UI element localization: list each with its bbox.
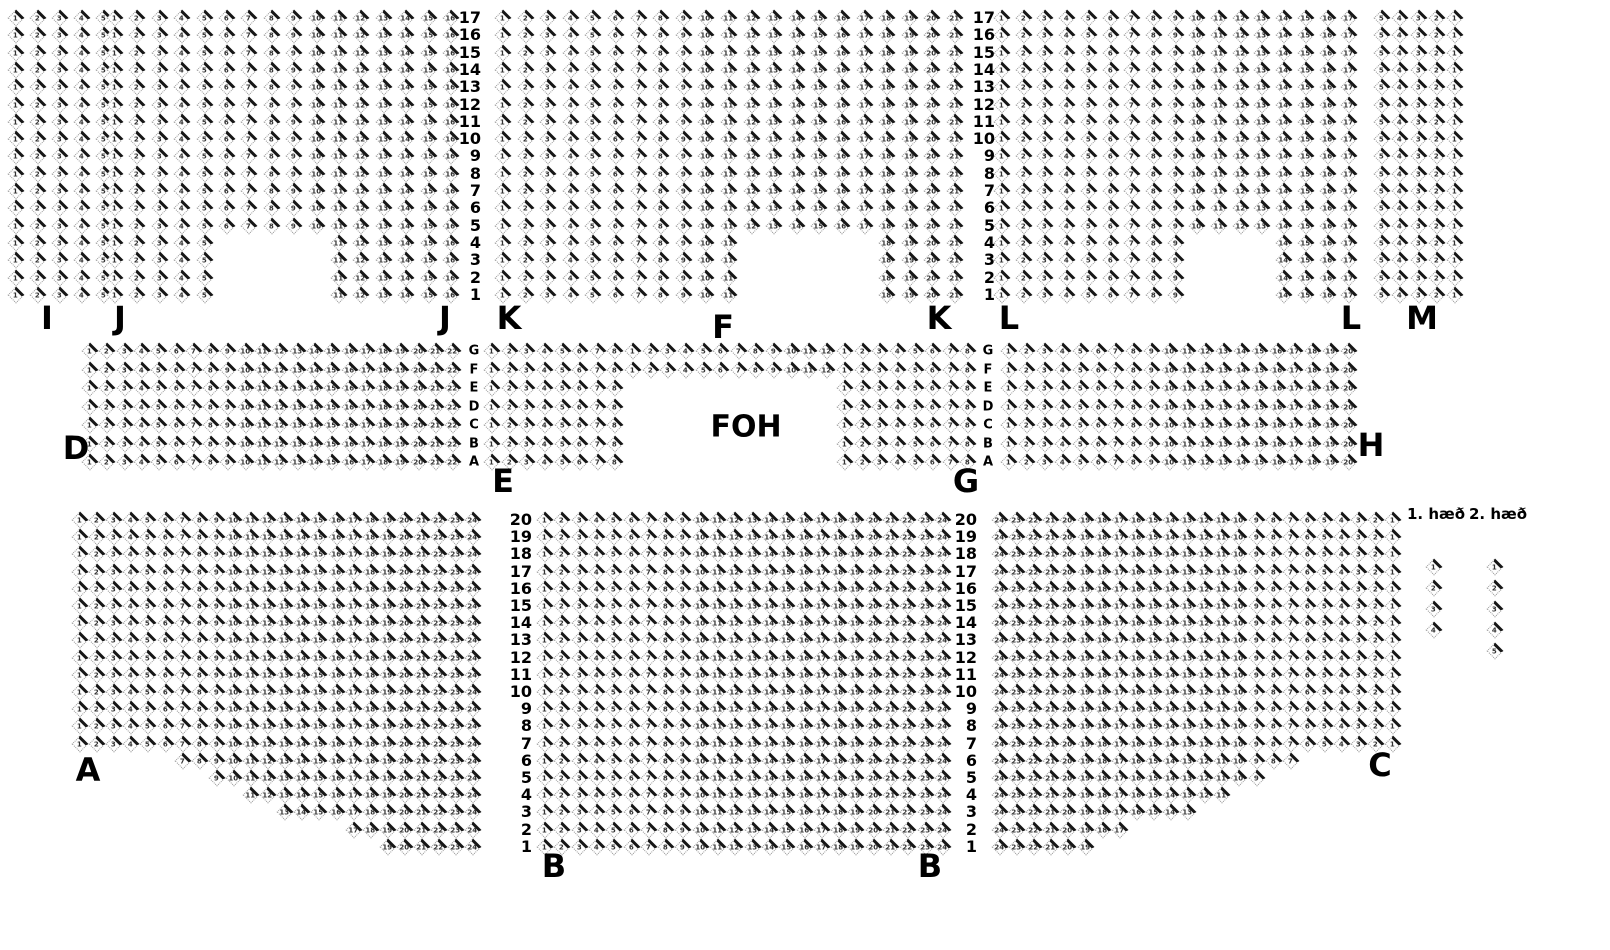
seat-C[interactable]: 10	[1231, 684, 1248, 701]
seat-L[interactable]: 6	[1102, 183, 1119, 200]
seat-A[interactable]: 16	[328, 546, 345, 563]
seat-B[interactable]: 18	[831, 649, 848, 666]
seat-L[interactable]: 11	[1211, 165, 1228, 182]
seat-J[interactable]: 3	[151, 113, 168, 130]
seat-K[interactable]: 9	[675, 10, 692, 27]
seat-K[interactable]: 17	[856, 183, 873, 200]
seat-L[interactable]: 8	[1145, 113, 1162, 130]
seat-H[interactable]: 18	[1305, 361, 1322, 378]
seat-K[interactable]: 11	[721, 269, 738, 286]
seat-B[interactable]: 12	[727, 718, 744, 735]
seat-G[interactable]: 2	[854, 398, 871, 415]
seat-L[interactable]: 14	[1276, 217, 1293, 234]
seat-A[interactable]: 18	[362, 632, 379, 649]
seat-K[interactable]: 11	[721, 131, 738, 148]
seat-C[interactable]: 11	[1214, 735, 1231, 752]
seat-K[interactable]: 7	[630, 96, 647, 113]
seat-F[interactable]: 6	[713, 361, 730, 378]
seat-C[interactable]: 2	[1368, 529, 1385, 546]
seat-C[interactable]: 20	[1060, 666, 1077, 683]
seat-C[interactable]: 13	[1180, 701, 1197, 718]
seat-C[interactable]: 5	[1316, 563, 1333, 580]
seat-K[interactable]: 9	[675, 79, 692, 96]
seat-B[interactable]: 17	[813, 615, 830, 632]
seat-J[interactable]: 13	[375, 96, 392, 113]
seat-B[interactable]: 12	[727, 821, 744, 838]
seat-C[interactable]: 23	[1009, 666, 1026, 683]
seat-L[interactable]: 5	[1080, 131, 1097, 148]
seat-B[interactable]: 3	[571, 529, 588, 546]
seat-L[interactable]: 2	[1015, 183, 1032, 200]
seat-M[interactable]: 4	[1392, 217, 1409, 234]
seat-floor2-categories[interactable]: 4	[1487, 622, 1504, 639]
seat-J[interactable]: 13	[375, 200, 392, 217]
seat-B[interactable]: 14	[761, 580, 778, 597]
seat-J[interactable]: 5	[196, 44, 213, 61]
seat-B[interactable]: 11	[710, 546, 727, 563]
seat-B[interactable]: 21	[883, 598, 900, 615]
seat-C[interactable]: 5	[1316, 735, 1333, 752]
seat-C[interactable]: 12	[1197, 770, 1214, 787]
seat-D[interactable]: 21	[428, 380, 445, 397]
seat-J[interactable]: 1	[107, 234, 124, 251]
seat-J[interactable]: 3	[151, 148, 168, 165]
seat-L[interactable]: 7	[1124, 217, 1141, 234]
seat-C[interactable]: 14	[1163, 770, 1180, 787]
seat-B[interactable]: 23	[917, 615, 934, 632]
seat-H[interactable]: 6	[1090, 435, 1107, 452]
seat-L[interactable]: 10	[1189, 200, 1206, 217]
seat-H[interactable]: 8	[1126, 454, 1143, 471]
seat-L[interactable]: 2	[1015, 131, 1032, 148]
seat-I[interactable]: 1	[8, 234, 25, 251]
seat-C[interactable]: 17	[1111, 804, 1128, 821]
seat-C[interactable]: 5	[1316, 546, 1333, 563]
seat-A[interactable]: 2	[89, 666, 106, 683]
seat-D[interactable]: 17	[358, 435, 375, 452]
seat-M[interactable]: 3	[1410, 131, 1427, 148]
seat-L[interactable]: 16	[1319, 269, 1336, 286]
seat-C[interactable]: 4	[1334, 512, 1351, 529]
seat-L[interactable]: 6	[1102, 113, 1119, 130]
seat-L[interactable]: 5	[1080, 286, 1097, 303]
seat-B[interactable]: 4	[588, 701, 605, 718]
seat-B[interactable]: 23	[917, 718, 934, 735]
seat-D[interactable]: 2	[99, 435, 116, 452]
seat-B[interactable]: 1	[537, 701, 554, 718]
seat-C[interactable]: 24	[992, 770, 1009, 787]
seat-A[interactable]: 23	[448, 770, 465, 787]
seat-C[interactable]: 21	[1043, 838, 1060, 855]
seat-G[interactable]: 1	[837, 417, 854, 434]
seat-K[interactable]: 7	[630, 200, 647, 217]
seat-G[interactable]: 4	[889, 343, 906, 360]
seat-L[interactable]: 11	[1211, 79, 1228, 96]
seat-K[interactable]: 10	[698, 44, 715, 61]
seat-D[interactable]: 6	[168, 454, 185, 471]
seat-M[interactable]: 3	[1410, 148, 1427, 165]
seat-B[interactable]: 16	[796, 701, 813, 718]
seat-H[interactable]: 15	[1251, 435, 1268, 452]
seat-A[interactable]: 9	[208, 701, 225, 718]
seat-K[interactable]: 13	[766, 27, 783, 44]
seat-J[interactable]: 9	[286, 10, 303, 27]
seat-C[interactable]: 3	[1351, 580, 1368, 597]
seat-I[interactable]: 1	[8, 148, 25, 165]
seat-A[interactable]: 4	[123, 718, 140, 735]
seat-B[interactable]: 21	[883, 580, 900, 597]
seat-A[interactable]: 17	[345, 546, 362, 563]
seat-A[interactable]: 16	[328, 580, 345, 597]
seat-K[interactable]: 12	[743, 183, 760, 200]
seat-E[interactable]: 7	[589, 398, 606, 415]
seat-K[interactable]: 5	[585, 252, 602, 269]
seat-B[interactable]: 23	[917, 684, 934, 701]
seat-H[interactable]: 6	[1090, 417, 1107, 434]
seat-K[interactable]: 4	[562, 113, 579, 130]
seat-K[interactable]: 18	[879, 79, 896, 96]
seat-C[interactable]: 5	[1316, 580, 1333, 597]
seat-K[interactable]: 2	[517, 61, 534, 78]
seat-B[interactable]: 11	[710, 770, 727, 787]
seat-A[interactable]: 7	[174, 752, 191, 769]
seat-A[interactable]: 17	[345, 649, 362, 666]
seat-H[interactable]: 4	[1054, 343, 1071, 360]
seat-B[interactable]: 21	[883, 529, 900, 546]
seat-H[interactable]: 4	[1054, 454, 1071, 471]
seat-B[interactable]: 24	[934, 684, 951, 701]
seat-B[interactable]: 24	[934, 735, 951, 752]
seat-J[interactable]: 15	[420, 61, 437, 78]
seat-K[interactable]: 7	[630, 183, 647, 200]
seat-J[interactable]: 8	[263, 183, 280, 200]
seat-J[interactable]: 7	[241, 10, 258, 27]
seat-B[interactable]: 15	[779, 770, 796, 787]
seat-B[interactable]: 3	[571, 649, 588, 666]
seat-J[interactable]: 16	[443, 44, 460, 61]
seat-G[interactable]: 7	[942, 343, 959, 360]
seat-A[interactable]: 6	[157, 735, 174, 752]
seat-J[interactable]: 2	[129, 286, 146, 303]
seat-B[interactable]: 11	[710, 752, 727, 769]
seat-A[interactable]: 15	[311, 684, 328, 701]
seat-M[interactable]: 4	[1392, 27, 1409, 44]
seat-K[interactable]: 18	[879, 234, 896, 251]
seat-C[interactable]: 24	[992, 838, 1009, 855]
seat-C[interactable]: 24	[992, 649, 1009, 666]
seat-C[interactable]: 2	[1368, 718, 1385, 735]
seat-L[interactable]: 4	[1059, 10, 1076, 27]
seat-C[interactable]: 14	[1163, 563, 1180, 580]
seat-L[interactable]: 14	[1276, 269, 1293, 286]
seat-C[interactable]: 11	[1214, 598, 1231, 615]
seat-C[interactable]: 2	[1368, 546, 1385, 563]
seat-E[interactable]: 4	[536, 361, 553, 378]
seat-C[interactable]: 21	[1043, 598, 1060, 615]
seat-K[interactable]: 13	[766, 61, 783, 78]
seat-K[interactable]: 1	[495, 44, 512, 61]
seat-K[interactable]: 8	[653, 27, 670, 44]
seat-G[interactable]: 3	[872, 343, 889, 360]
seat-L[interactable]: 3	[1037, 113, 1054, 130]
seat-B[interactable]: 13	[744, 804, 761, 821]
seat-C[interactable]: 7	[1282, 649, 1299, 666]
seat-D[interactable]: 10	[237, 343, 254, 360]
seat-B[interactable]: 6	[623, 838, 640, 855]
seat-B[interactable]: 14	[761, 701, 778, 718]
seat-B[interactable]: 13	[744, 838, 761, 855]
seat-B[interactable]: 18	[831, 838, 848, 855]
seat-A[interactable]: 16	[328, 752, 345, 769]
seat-J[interactable]: 5	[196, 96, 213, 113]
seat-A[interactable]: 14	[294, 649, 311, 666]
seat-C[interactable]: 12	[1197, 701, 1214, 718]
seat-E[interactable]: 5	[554, 361, 571, 378]
seat-K[interactable]: 7	[630, 286, 647, 303]
seat-A[interactable]: 4	[123, 735, 140, 752]
seat-L[interactable]: 13	[1254, 217, 1271, 234]
seat-H[interactable]: 10	[1162, 454, 1179, 471]
seat-J[interactable]: 16	[443, 252, 460, 269]
seat-A[interactable]: 7	[174, 512, 191, 529]
seat-M[interactable]: 3	[1410, 113, 1427, 130]
seat-H[interactable]: 19	[1323, 398, 1340, 415]
seat-I[interactable]: 3	[52, 269, 69, 286]
seat-L[interactable]: 1	[994, 61, 1011, 78]
seat-B[interactable]: 3	[571, 735, 588, 752]
seat-K[interactable]: 21	[947, 217, 964, 234]
seat-C[interactable]: 4	[1334, 615, 1351, 632]
seat-J[interactable]: 15	[420, 200, 437, 217]
seat-E[interactable]: 5	[554, 343, 571, 360]
seat-B[interactable]: 18	[831, 529, 848, 546]
seat-K[interactable]: 3	[540, 44, 557, 61]
seat-B[interactable]: 19	[848, 718, 865, 735]
seat-C[interactable]: 12	[1197, 684, 1214, 701]
seat-A[interactable]: 4	[123, 701, 140, 718]
seat-I[interactable]: 4	[74, 113, 91, 130]
seat-J[interactable]: 12	[353, 165, 370, 182]
seat-A[interactable]: 4	[123, 684, 140, 701]
seat-D[interactable]: 9	[220, 361, 237, 378]
seat-L[interactable]: 11	[1211, 183, 1228, 200]
seat-B[interactable]: 18	[831, 632, 848, 649]
seat-B[interactable]: 8	[658, 666, 675, 683]
seat-B[interactable]: 8	[658, 701, 675, 718]
seat-H[interactable]: 18	[1305, 435, 1322, 452]
seat-D[interactable]: 18	[376, 454, 393, 471]
seat-H[interactable]: 11	[1180, 361, 1197, 378]
seat-C[interactable]: 8	[1265, 752, 1282, 769]
seat-A[interactable]: 5	[140, 632, 157, 649]
seat-A[interactable]: 14	[294, 787, 311, 804]
seat-A[interactable]: 17	[345, 787, 362, 804]
seat-B[interactable]: 20	[865, 598, 882, 615]
seat-M[interactable]: 3	[1410, 61, 1427, 78]
seat-B[interactable]: 2	[554, 821, 571, 838]
seat-M[interactable]: 2	[1428, 252, 1445, 269]
seat-B[interactable]: 7	[640, 770, 657, 787]
seat-J[interactable]: 1	[107, 131, 124, 148]
seat-B[interactable]: 19	[848, 546, 865, 563]
seat-L[interactable]: 3	[1037, 61, 1054, 78]
seat-D[interactable]: 18	[376, 417, 393, 434]
seat-L[interactable]: 5	[1080, 269, 1097, 286]
seat-J[interactable]: 11	[331, 113, 348, 130]
seat-J[interactable]: 7	[241, 61, 258, 78]
seat-C[interactable]: 17	[1111, 563, 1128, 580]
seat-K[interactable]: 13	[766, 165, 783, 182]
seat-H[interactable]: 3	[1036, 380, 1053, 397]
seat-A[interactable]: 10	[225, 770, 242, 787]
seat-J[interactable]: 2	[129, 10, 146, 27]
seat-C[interactable]: 13	[1180, 684, 1197, 701]
seat-B[interactable]: 2	[554, 752, 571, 769]
seat-B[interactable]: 7	[640, 666, 657, 683]
seat-K[interactable]: 18	[879, 165, 896, 182]
seat-B[interactable]: 15	[779, 666, 796, 683]
seat-D[interactable]: 20	[410, 435, 427, 452]
seat-D[interactable]: 1	[82, 380, 99, 397]
seat-J[interactable]: 12	[353, 131, 370, 148]
seat-H[interactable]: 13	[1215, 398, 1232, 415]
seat-C[interactable]: 6	[1299, 684, 1316, 701]
seat-H[interactable]: 10	[1162, 343, 1179, 360]
seat-L[interactable]: 8	[1145, 96, 1162, 113]
seat-E[interactable]: 7	[589, 417, 606, 434]
seat-B[interactable]: 7	[640, 512, 657, 529]
seat-B[interactable]: 2	[554, 580, 571, 597]
seat-L[interactable]: 9	[1167, 217, 1184, 234]
seat-A[interactable]: 9	[208, 615, 225, 632]
seat-K[interactable]: 3	[540, 165, 557, 182]
seat-I[interactable]: 3	[52, 79, 69, 96]
seat-B[interactable]: 1	[537, 512, 554, 529]
seat-B[interactable]: 14	[761, 770, 778, 787]
seat-G[interactable]: 7	[942, 398, 959, 415]
seat-D[interactable]: 12	[272, 343, 289, 360]
seat-M[interactable]: 5	[1374, 79, 1391, 96]
seat-C[interactable]: 14	[1163, 649, 1180, 666]
seat-M[interactable]: 3	[1410, 10, 1427, 27]
seat-A[interactable]: 17	[345, 529, 362, 546]
seat-C[interactable]: 18	[1094, 546, 1111, 563]
seat-J[interactable]: 11	[331, 200, 348, 217]
seat-B[interactable]: 5	[606, 804, 623, 821]
seat-L[interactable]: 9	[1167, 61, 1184, 78]
seat-B[interactable]: 16	[796, 632, 813, 649]
seat-D[interactable]: 17	[358, 417, 375, 434]
seat-A[interactable]: 13	[277, 752, 294, 769]
seat-B[interactable]: 4	[588, 580, 605, 597]
seat-B[interactable]: 11	[710, 529, 727, 546]
seat-K[interactable]: 9	[675, 234, 692, 251]
seat-J[interactable]: 9	[286, 79, 303, 96]
seat-H[interactable]: 4	[1054, 435, 1071, 452]
seat-I[interactable]: 3	[52, 113, 69, 130]
seat-C[interactable]: 10	[1231, 718, 1248, 735]
seat-C[interactable]: 20	[1060, 821, 1077, 838]
seat-H[interactable]: 19	[1323, 361, 1340, 378]
seat-C[interactable]: 8	[1265, 546, 1282, 563]
seat-K[interactable]: 13	[766, 44, 783, 61]
seat-D[interactable]: 19	[393, 417, 410, 434]
seat-H[interactable]: 11	[1180, 435, 1197, 452]
seat-J[interactable]: 1	[107, 217, 124, 234]
seat-J[interactable]: 2	[129, 183, 146, 200]
seat-C[interactable]: 15	[1145, 598, 1162, 615]
seat-J[interactable]: 2	[129, 200, 146, 217]
seat-B[interactable]: 10	[692, 615, 709, 632]
seat-G[interactable]: 7	[942, 435, 959, 452]
seat-J[interactable]: 14	[398, 96, 415, 113]
seat-C[interactable]: 13	[1180, 770, 1197, 787]
seat-A[interactable]: 9	[208, 546, 225, 563]
seat-B[interactable]: 16	[796, 512, 813, 529]
seat-J[interactable]: 15	[420, 234, 437, 251]
seat-B[interactable]: 1	[537, 735, 554, 752]
seat-H[interactable]: 1	[1001, 454, 1018, 471]
seat-J[interactable]: 7	[241, 183, 258, 200]
seat-L[interactable]: 14	[1276, 234, 1293, 251]
seat-A[interactable]: 7	[174, 718, 191, 735]
seat-K[interactable]: 3	[540, 27, 557, 44]
seat-B[interactable]: 10	[692, 598, 709, 615]
seat-A[interactable]: 19	[379, 838, 396, 855]
seat-F[interactable]: 12	[818, 343, 835, 360]
seat-J[interactable]: 12	[353, 252, 370, 269]
seat-A[interactable]: 5	[140, 529, 157, 546]
seat-B[interactable]: 5	[606, 598, 623, 615]
seat-G[interactable]: 8	[960, 343, 977, 360]
seat-C[interactable]: 19	[1077, 580, 1094, 597]
seat-D[interactable]: 6	[168, 361, 185, 378]
seat-K[interactable]: 16	[834, 165, 851, 182]
seat-B[interactable]: 21	[883, 666, 900, 683]
seat-J[interactable]: 10	[308, 79, 325, 96]
seat-A[interactable]: 8	[191, 649, 208, 666]
seat-L[interactable]: 2	[1015, 217, 1032, 234]
seat-C[interactable]: 9	[1248, 770, 1265, 787]
seat-A[interactable]: 22	[431, 684, 448, 701]
seat-M[interactable]: 2	[1428, 217, 1445, 234]
seat-C[interactable]: 23	[1009, 770, 1026, 787]
seat-A[interactable]: 21	[414, 632, 431, 649]
seat-H[interactable]: 15	[1251, 454, 1268, 471]
seat-F[interactable]: 5	[695, 343, 712, 360]
seat-A[interactable]: 19	[379, 804, 396, 821]
seat-A[interactable]: 8	[191, 512, 208, 529]
seat-J[interactable]: 1	[107, 200, 124, 217]
seat-K[interactable]: 1	[495, 165, 512, 182]
seat-A[interactable]: 11	[243, 701, 260, 718]
seat-C[interactable]: 16	[1128, 666, 1145, 683]
seat-K[interactable]: 3	[540, 252, 557, 269]
seat-L[interactable]: 12	[1232, 183, 1249, 200]
seat-C[interactable]: 18	[1094, 821, 1111, 838]
seat-B[interactable]: 22	[900, 838, 917, 855]
seat-H[interactable]: 2	[1018, 361, 1035, 378]
seat-C[interactable]: 16	[1128, 701, 1145, 718]
seat-B[interactable]: 12	[727, 529, 744, 546]
seat-B[interactable]: 8	[658, 718, 675, 735]
seat-B[interactable]: 23	[917, 752, 934, 769]
seat-A[interactable]: 20	[396, 580, 413, 597]
seat-A[interactable]: 21	[414, 546, 431, 563]
seat-A[interactable]: 15	[311, 701, 328, 718]
seat-J[interactable]: 14	[398, 79, 415, 96]
seat-C[interactable]: 7	[1282, 563, 1299, 580]
